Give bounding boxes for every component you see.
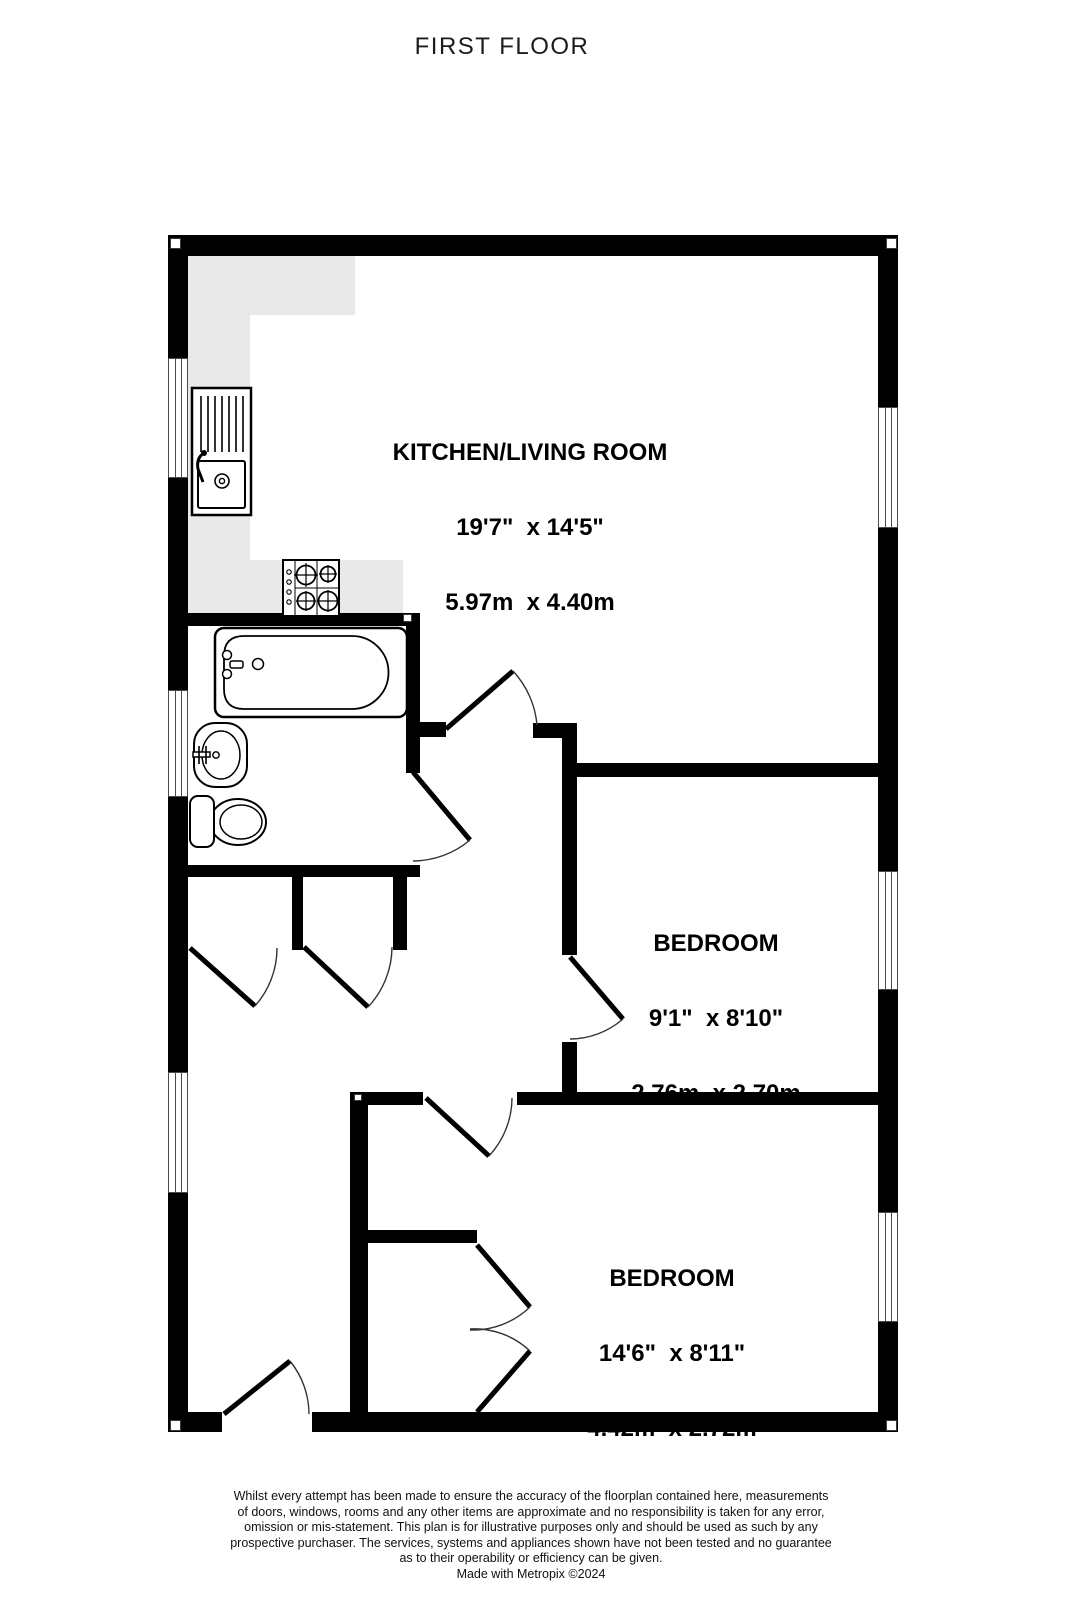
- disclaimer-line: of doors, windows, rooms and any other i…: [191, 1505, 871, 1521]
- disclaimer-line: prospective purchaser. The services, sys…: [191, 1536, 871, 1552]
- entrance-door: [224, 1361, 290, 1414]
- room-size-metric: 5.97m x 4.40m: [393, 590, 668, 615]
- toilet-icon: [190, 796, 266, 847]
- bathroom-door: [413, 772, 470, 840]
- room-name: BEDROOM: [631, 931, 800, 956]
- disclaimer-line: as to their operability or efficiency ca…: [191, 1551, 871, 1567]
- door-swing-arcs: [255, 671, 623, 1414]
- hall-cupboard-door-1: [190, 948, 255, 1006]
- room-size-metric: 2.76m x 2.70m: [631, 1081, 800, 1106]
- floor-plan-page: FIRST FLOOR: [0, 0, 1066, 1600]
- label-bedroom1: BEDROOM 9'1" x 8'10" 2.76m x 2.70m: [631, 881, 800, 1156]
- disclaimer-line: omission or mis-statement. This plan is …: [191, 1520, 871, 1536]
- kitchen-sink-drainer-icon: [192, 388, 251, 515]
- room-name: BEDROOM: [587, 1266, 756, 1291]
- room-size-imperial: 14'6" x 8'11": [587, 1341, 756, 1366]
- bedroom2-door: [426, 1098, 489, 1156]
- wash-basin-icon: [193, 723, 247, 787]
- bedroom2-cupboard-door-bottom: [477, 1351, 530, 1412]
- label-bedroom2: BEDROOM 14'6" x 8'11" 4.42m x 2.72m: [587, 1216, 756, 1491]
- hall-cupboard-door-2: [304, 947, 368, 1007]
- disclaimer-line: Whilst every attempt has been made to en…: [191, 1489, 871, 1505]
- bedroom1-door: [570, 957, 623, 1019]
- living-room-door: [446, 671, 513, 729]
- label-kitchen-living-room: KITCHEN/LIVING ROOM 19'7" x 14'5" 5.97m …: [393, 390, 668, 665]
- disclaimer: Whilst every attempt has been made to en…: [191, 1489, 871, 1582]
- bath-icon: [215, 628, 407, 717]
- room-size-imperial: 9'1" x 8'10": [631, 1006, 800, 1031]
- room-name: KITCHEN/LIVING ROOM: [393, 440, 668, 465]
- bedroom2-cupboard-door-top: [477, 1245, 530, 1307]
- room-size-metric: 4.42m x 2.72m: [587, 1416, 756, 1441]
- room-size-imperial: 19'7" x 14'5": [393, 515, 668, 540]
- credit-line: Made with Metropix ©2024: [191, 1567, 871, 1583]
- fixtures-layer: [0, 0, 1066, 1600]
- hob-icon: [283, 560, 339, 616]
- door-leaves: [190, 671, 623, 1414]
